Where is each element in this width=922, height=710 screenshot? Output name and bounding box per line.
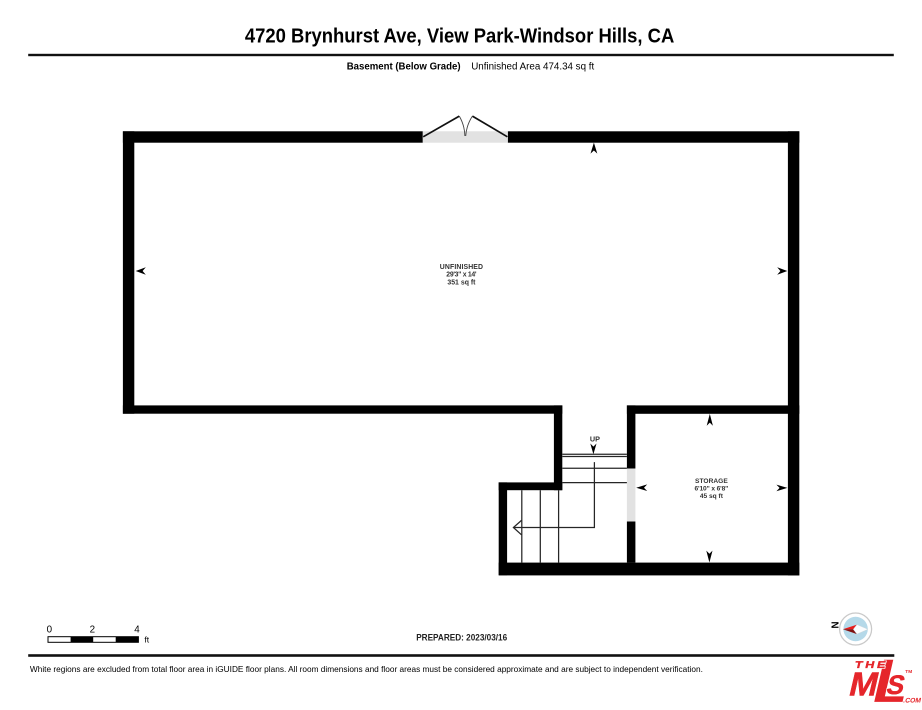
svg-text:White regions are excluded fro: White regions are excluded from total fl…: [30, 664, 703, 674]
svg-text:0: 0: [47, 625, 53, 636]
svg-text:N: N: [829, 621, 840, 628]
svg-text:PREPARED: 2023/03/16: PREPARED: 2023/03/16: [416, 632, 507, 642]
svg-text:Unfinished Area 474.34 sq ft: Unfinished Area 474.34 sq ft: [471, 61, 594, 72]
svg-text:UP: UP: [590, 436, 600, 443]
svg-text:UNFINISHED: UNFINISHED: [440, 264, 483, 271]
svg-text:ft: ft: [144, 634, 149, 644]
svg-text:TM: TM: [905, 669, 912, 675]
svg-text:STORAGE: STORAGE: [695, 478, 728, 485]
svg-text:THE: THE: [854, 660, 890, 671]
svg-text:29'3" x 14': 29'3" x 14': [446, 272, 477, 279]
svg-text:.COM: .COM: [902, 697, 922, 704]
svg-text:2: 2: [90, 625, 95, 636]
svg-text:Basement (Below Grade): Basement (Below Grade): [347, 61, 461, 72]
svg-text:4720 Brynhurst Ave, View Park-: 4720 Brynhurst Ave, View Park-Windsor Hi…: [245, 26, 674, 48]
svg-text:4: 4: [134, 625, 140, 636]
svg-text:351 sq ft: 351 sq ft: [447, 279, 476, 286]
svg-text:45 sq ft: 45 sq ft: [700, 493, 724, 500]
svg-text:6'10" x 6'8": 6'10" x 6'8": [695, 486, 729, 493]
